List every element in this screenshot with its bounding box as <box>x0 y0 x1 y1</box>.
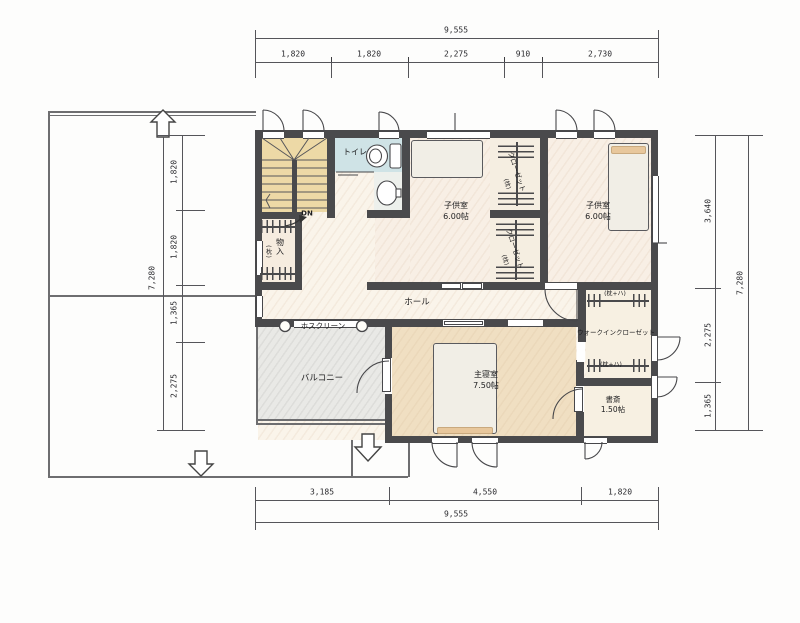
casement-arc-icon <box>303 110 324 131</box>
casement-arc-icon <box>657 337 680 360</box>
up-arrow-icon <box>151 110 175 137</box>
master-bedroom-name: 主寝室 <box>473 369 499 380</box>
casement-arc-icon <box>432 442 457 467</box>
storage-note: (枕) <box>263 245 274 259</box>
dim-left-seg-3: 1,365 <box>170 301 179 325</box>
dim-bottom-total: 9,555 <box>444 510 468 519</box>
balcony-label: バルコニー <box>301 374 343 385</box>
wic-shelf-bottom-note: (枕+ハ) <box>600 360 622 371</box>
child-room-1-label: 子供室 6.00帖 <box>443 200 469 222</box>
dim-top-seg-3: 2,275 <box>444 50 468 59</box>
hall-label: ホール <box>404 298 430 309</box>
stairs-center-wall <box>292 160 297 212</box>
hosclean-label: ホスクリーン <box>301 321 346 332</box>
dim-bottom-seg-1: 3,185 <box>310 488 334 497</box>
toilet-icon <box>367 144 402 168</box>
dim-bottom-seg-3: 1,820 <box>608 488 632 497</box>
hosclean-hook-icon <box>280 321 291 332</box>
child-room-1-size: 6.00帖 <box>443 211 469 222</box>
child-room-2-name: 子供室 <box>585 200 611 211</box>
wic-label: ウォークインクローゼット <box>577 328 655 339</box>
hosclean-hook-icon <box>357 321 368 332</box>
dim-top-seg-5: 2,730 <box>588 50 612 59</box>
dim-left-total: 7,280 <box>148 266 157 290</box>
down-arrow-icon <box>189 451 213 476</box>
child-room-1-name: 子供室 <box>443 200 469 211</box>
dimension-line <box>255 62 658 63</box>
casement-arc-icon <box>594 110 615 131</box>
study-name: 書斎 <box>601 395 625 405</box>
casement-arc-icon <box>263 110 284 131</box>
dim-top-seg-1: 1,820 <box>281 50 305 59</box>
down-arrow-icon-balcony <box>355 434 381 461</box>
study-size: 1.50帖 <box>601 405 625 415</box>
master-bedroom-label: 主寝室 7.50帖 <box>473 369 499 391</box>
dim-top-total: 9,555 <box>444 26 468 35</box>
door-arc-child2 <box>545 289 577 321</box>
door-arc-study <box>553 389 583 419</box>
symbols-overlay <box>0 0 800 623</box>
dimension-line <box>748 135 749 430</box>
casement-arc-icon <box>657 377 677 397</box>
dn-label: DN <box>301 209 313 220</box>
dim-left-seg-4: 2,275 <box>170 374 179 398</box>
child-room-2-size: 6.00帖 <box>585 211 611 222</box>
basin-icon <box>377 181 401 205</box>
dim-left-seg-2: 1,820 <box>170 235 179 259</box>
dimension-line <box>163 137 164 430</box>
dim-bottom-seg-2: 4,550 <box>473 488 497 497</box>
dim-top-seg-4: 910 <box>516 50 530 59</box>
dimension-line <box>182 135 183 430</box>
casement-arc-icon <box>472 442 497 467</box>
dim-right-seg-1: 3,640 <box>704 199 713 223</box>
casement-arc-icon <box>556 110 577 131</box>
wic-shelf-top-note: (枕+ハ) <box>604 289 626 300</box>
dimension-line <box>255 38 658 39</box>
casement-arc-icon <box>379 112 399 132</box>
child-room-2-label: 子供室 6.00帖 <box>585 200 611 222</box>
dim-top-seg-2: 1,820 <box>357 50 381 59</box>
floor-plan-canvas: トイレ DN 物入 (枕) 子供室 6.00帖 子供室 6.00帖 クローゼット… <box>0 0 800 623</box>
dim-right-total: 7,280 <box>736 271 745 295</box>
door-arc-balcony <box>357 361 389 393</box>
dimension-line <box>715 135 716 430</box>
storage-label: 物入 <box>275 238 286 256</box>
dim-right-seg-3: 1,365 <box>704 394 713 418</box>
dimension-line <box>255 522 658 523</box>
toilet-label: トイレ <box>343 147 367 158</box>
dim-left-seg-1: 1,820 <box>170 160 179 184</box>
dim-right-seg-2: 2,275 <box>704 323 713 347</box>
master-bedroom-size: 7.50帖 <box>473 380 499 391</box>
study-label: 書斎 1.50帖 <box>601 395 625 415</box>
dimension-line <box>255 500 658 501</box>
casement-arc-icon <box>585 442 602 459</box>
